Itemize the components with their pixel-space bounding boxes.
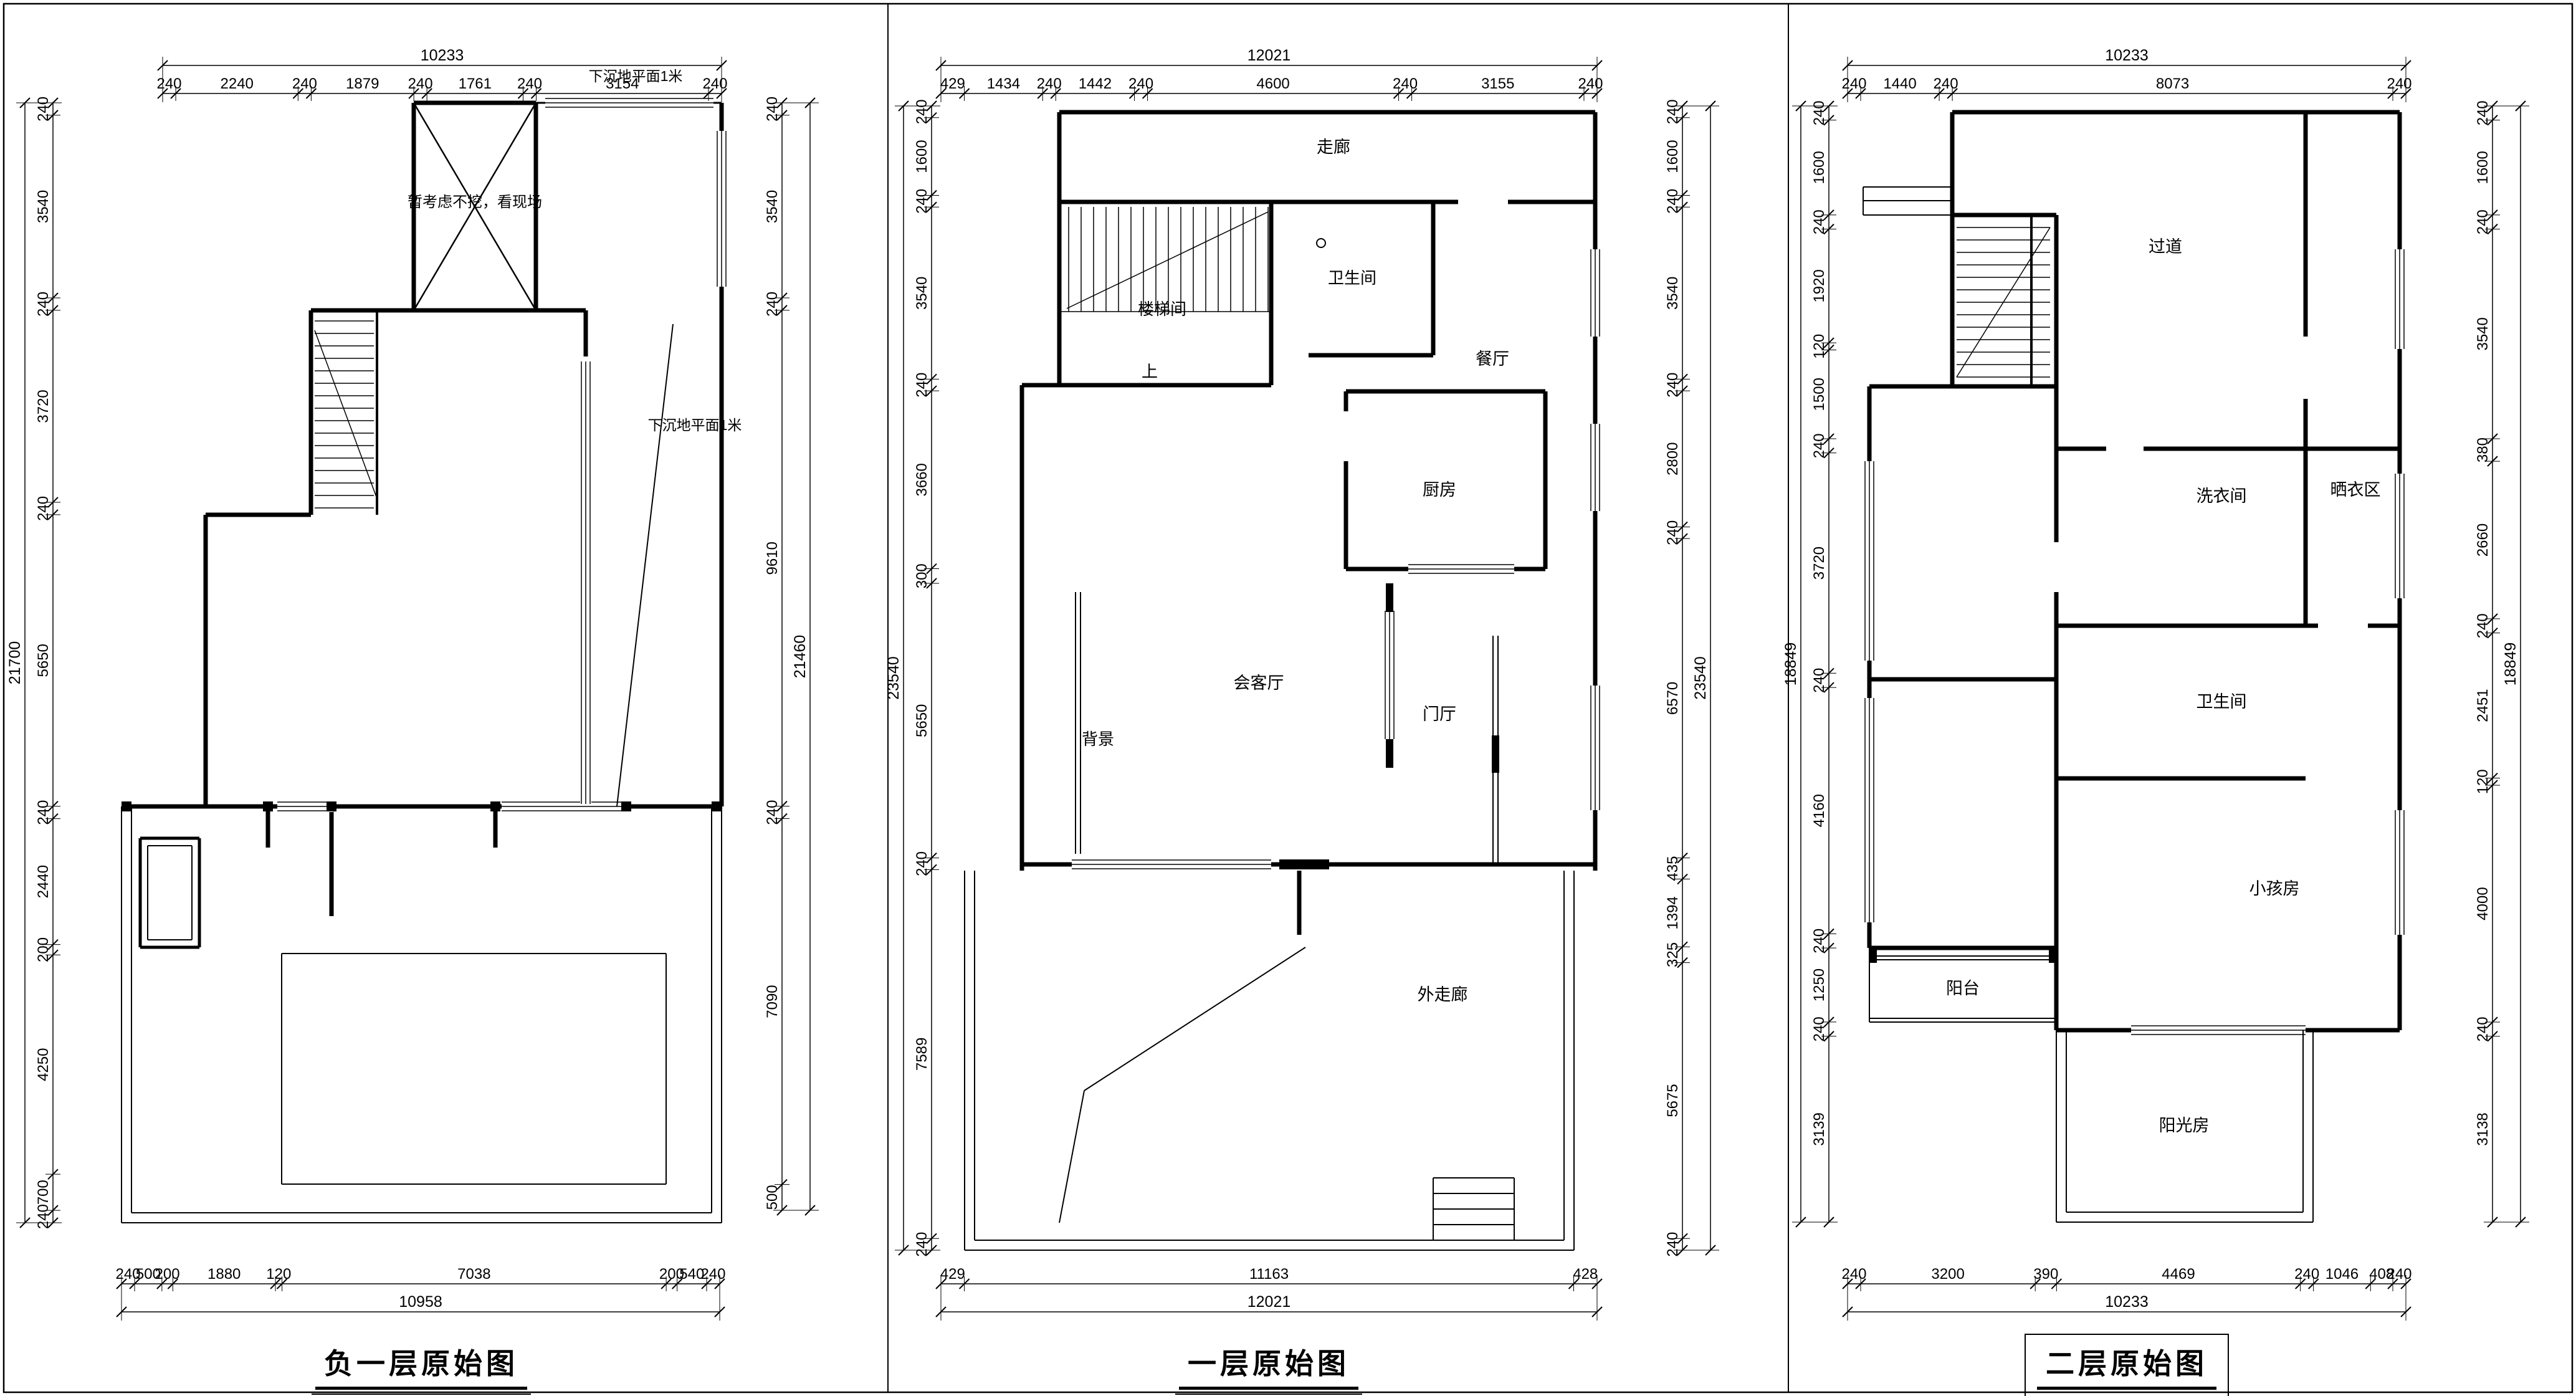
dim-value: 240 — [1128, 75, 1153, 92]
plan-first-floor: 走廊卫生间楼梯间上餐厅厨房会客厅背景门厅外走廊42914342401442240… — [885, 47, 1719, 1321]
dim-value: 9610 — [764, 542, 781, 575]
dim-value: 4160 — [1811, 794, 1828, 827]
wall-post — [327, 801, 336, 811]
wall-post — [1386, 739, 1393, 768]
dim-value: 3155 — [1481, 75, 1514, 92]
plan-title-basement: 负一层原始图 — [312, 1341, 531, 1395]
plan-title-second-floor: 二层原始图 — [2025, 1334, 2229, 1396]
dim-value: 1880 — [208, 1266, 241, 1283]
thin-wall — [1059, 1091, 1084, 1223]
dim-value: 3540 — [1664, 277, 1681, 310]
dim-value: 700 — [35, 1180, 52, 1205]
wall-post — [1869, 948, 1877, 963]
dim-value: 4600 — [1256, 75, 1289, 92]
dim-value: 1600 — [2474, 151, 2491, 184]
dim-value: 2451 — [2474, 689, 2491, 722]
dim-value: 6570 — [1664, 682, 1681, 715]
plan-title-first-floor-text: 一层原始图 — [1179, 1341, 1358, 1390]
plan-title-basement-text: 负一层原始图 — [315, 1341, 527, 1390]
dim-total: 18849 — [1782, 643, 1800, 686]
dim-value: 240 — [1811, 209, 1828, 234]
dim-value: 3720 — [35, 390, 52, 423]
room-label: 厨房 — [1423, 480, 1456, 499]
dim-value: 240 — [1578, 75, 1603, 92]
dim-value: 240 — [35, 292, 52, 317]
room-label: 卫生间 — [1328, 269, 1376, 287]
dim-total: 21700 — [6, 641, 24, 685]
dim-value: 240 — [408, 75, 433, 92]
dim-value: 240 — [35, 97, 52, 122]
dim-total: 10958 — [399, 1293, 442, 1311]
room-label: 阳台 — [1946, 979, 1980, 998]
plan-basement: 暂考虑不挖，看现场下沉地平面1米下沉地平面1米24022402401879240… — [6, 47, 819, 1321]
dim-value: 3200 — [1931, 1266, 1964, 1283]
dim-value: 240 — [35, 800, 52, 825]
dim-total: 12021 — [1247, 47, 1291, 64]
dim-total: 10233 — [2105, 1293, 2149, 1311]
dim-value: 120 — [266, 1266, 291, 1283]
dim-value: 3540 — [764, 190, 781, 223]
dim-total: 23540 — [1692, 656, 1709, 700]
dim-value: 240 — [1664, 1232, 1681, 1257]
dim-value: 240 — [914, 851, 930, 876]
dim-value: 2660 — [2474, 523, 2491, 557]
dim-value: 3540 — [35, 190, 52, 223]
dim-value: 240 — [2474, 209, 2491, 234]
dim-value: 240 — [1811, 100, 1828, 125]
dim-value: 240 — [1664, 373, 1681, 398]
drawing-sheet: 暂考虑不挖，看现场下沉地平面1米下沉地平面1米24022402401879240… — [0, 0, 2576, 1396]
dim-value: 3139 — [1811, 1112, 1828, 1145]
dim-value: 380 — [2474, 437, 2491, 462]
dim-value: 240 — [1811, 929, 1828, 954]
stair-cut-line — [315, 330, 377, 499]
dim-value: 11163 — [1249, 1266, 1289, 1283]
dim-value: 240 — [1664, 520, 1681, 545]
dim-value: 240 — [1934, 75, 1958, 92]
room-label: 门厅 — [1423, 705, 1456, 724]
wall-post — [1386, 583, 1393, 612]
dim-value: 240 — [1664, 189, 1681, 214]
dim-value: 8073 — [2156, 75, 2189, 92]
dim-value: 240 — [914, 373, 930, 398]
dim-value: 1600 — [1664, 140, 1681, 173]
dim-value: 240 — [914, 1232, 930, 1257]
dim-value: 7090 — [764, 985, 781, 1018]
dim-value: 2440 — [35, 865, 52, 898]
dim-value: 240 — [764, 800, 781, 825]
dim-value: 240 — [1664, 99, 1681, 124]
dim-value: 1394 — [1664, 896, 1681, 929]
dim-value: 1442 — [1079, 75, 1112, 92]
dim-value: 240 — [2387, 75, 2411, 92]
dim-value: 240 — [517, 75, 542, 92]
dim-value: 390 — [2033, 1266, 2058, 1283]
dim-value: 4250 — [35, 1048, 52, 1081]
dim-value: 240 — [1811, 1016, 1828, 1041]
dim-total: 18849 — [2502, 643, 2519, 686]
dim-total: 21460 — [791, 635, 809, 679]
dim-value: 429 — [940, 1266, 965, 1283]
dim-value: 120 — [1811, 334, 1828, 359]
dim-value: 1440 — [1883, 75, 1916, 92]
dim-value: 240 — [1811, 433, 1828, 458]
room-label: 上 — [1142, 362, 1158, 381]
room-label: 楼梯间 — [1138, 300, 1186, 318]
wall-post — [2049, 948, 2056, 963]
dim-value: 5650 — [914, 704, 930, 737]
wall-post — [1279, 859, 1329, 869]
dim-value: 240 — [702, 75, 727, 92]
room-label: 会客厅 — [1234, 674, 1284, 692]
floorplan-canvas: 暂考虑不挖，看现场下沉地平面1米下沉地平面1米24022402401879240… — [0, 0, 2576, 1396]
dim-value: 240 — [1841, 75, 1866, 92]
dim-value: 240 — [2294, 1266, 2319, 1283]
dim-value: 1046 — [2326, 1266, 2359, 1283]
room-label: 洗衣间 — [2197, 487, 2247, 505]
room-label: 外走廊 — [1418, 985, 1468, 1004]
dim-total: 10233 — [421, 47, 464, 64]
plan-second-floor: 过道洗衣间晒衣区卫生间小孩房阳台阳光房240144024080732401023… — [1782, 47, 2529, 1321]
room-label: 背景 — [1082, 730, 1114, 748]
dim-value: 2240 — [221, 75, 254, 92]
plan-title-first-floor: 一层原始图 — [1175, 1341, 1362, 1395]
dim-value: 300 — [914, 563, 930, 588]
dim-value: 428 — [1573, 1266, 1598, 1283]
dim-value: 240 — [156, 75, 181, 92]
annotation: 暂考虑不挖，看现场 — [408, 194, 542, 211]
thin-wall — [1084, 947, 1305, 1091]
dim-value: 240 — [914, 99, 930, 124]
dim-value: 240 — [35, 1204, 52, 1229]
room-label: 晒衣区 — [2330, 480, 2381, 499]
dim-total: 10233 — [2105, 47, 2149, 64]
dim-value: 435 — [1664, 856, 1681, 881]
dim-value: 240 — [2474, 613, 2491, 638]
dim-value: 240 — [1037, 75, 1062, 92]
dim-value: 240 — [2474, 1016, 2491, 1041]
dim-value: 120 — [2474, 769, 2491, 794]
dim-value: 3154 — [606, 75, 639, 92]
dim-value: 5675 — [1664, 1084, 1681, 1117]
room-label: 走廊 — [1317, 138, 1350, 156]
dim-value: 2800 — [1664, 442, 1681, 476]
dim-value: 7589 — [914, 1038, 930, 1071]
wall-post — [712, 801, 722, 811]
dim-total: 23540 — [885, 656, 902, 700]
dim-value: 3138 — [2474, 1112, 2491, 1145]
dim-value: 240 — [700, 1266, 725, 1283]
floor-drain-icon — [1317, 239, 1325, 247]
dim-value: 500 — [764, 1185, 781, 1210]
dim-value: 3540 — [914, 277, 930, 310]
wall-post — [122, 801, 131, 811]
dim-value: 4000 — [2474, 887, 2491, 920]
room-label: 餐厅 — [1476, 350, 1509, 368]
dim-value: 240 — [764, 292, 781, 317]
room-label: 阳光房 — [2159, 1116, 2210, 1135]
wall-post — [621, 801, 631, 811]
dim-total: 12021 — [1247, 1293, 1291, 1311]
dim-value: 240 — [2474, 100, 2491, 125]
dim-value: 429 — [940, 75, 965, 92]
dim-value: 3660 — [914, 463, 930, 496]
dim-value: 7038 — [457, 1266, 490, 1283]
dim-value: 1920 — [1811, 269, 1828, 302]
dim-value: 1250 — [1811, 968, 1828, 1002]
dim-value: 3720 — [1811, 547, 1828, 580]
dim-value: 1434 — [987, 75, 1020, 92]
dim-value: 200 — [35, 937, 52, 962]
wall-post — [490, 801, 500, 811]
dim-value: 240 — [1393, 75, 1418, 92]
dim-value: 240 — [914, 189, 930, 214]
room-label: 卫生间 — [2197, 692, 2247, 711]
dim-value: 240 — [35, 496, 52, 521]
dim-value: 240 — [1841, 1266, 1866, 1283]
dim-value: 240 — [1811, 668, 1828, 693]
dim-value: 1879 — [346, 75, 379, 92]
dim-value: 1500 — [1811, 378, 1828, 411]
annotation: 下沉地平面1米 — [648, 417, 742, 433]
dim-value: 5650 — [35, 644, 52, 677]
dim-value: 240 — [2387, 1266, 2411, 1283]
dim-value: 240 — [292, 75, 317, 92]
dim-value: 325 — [1664, 942, 1681, 967]
wall-post — [263, 801, 273, 811]
room-label: 过道 — [2149, 237, 2182, 256]
plan-title-second-floor-text: 二层原始图 — [2037, 1341, 2216, 1390]
room-label: 小孩房 — [2249, 879, 2300, 898]
dim-value: 1761 — [459, 75, 492, 92]
thin-wall — [617, 324, 673, 806]
dim-value: 240 — [764, 97, 781, 122]
stair-cut-line — [1067, 212, 1268, 308]
dim-value: 4469 — [2162, 1266, 2195, 1283]
dim-value: 3540 — [2474, 317, 2491, 350]
dim-value: 1600 — [1811, 151, 1828, 184]
dim-value: 200 — [155, 1266, 180, 1283]
dim-value: 1600 — [914, 140, 930, 173]
